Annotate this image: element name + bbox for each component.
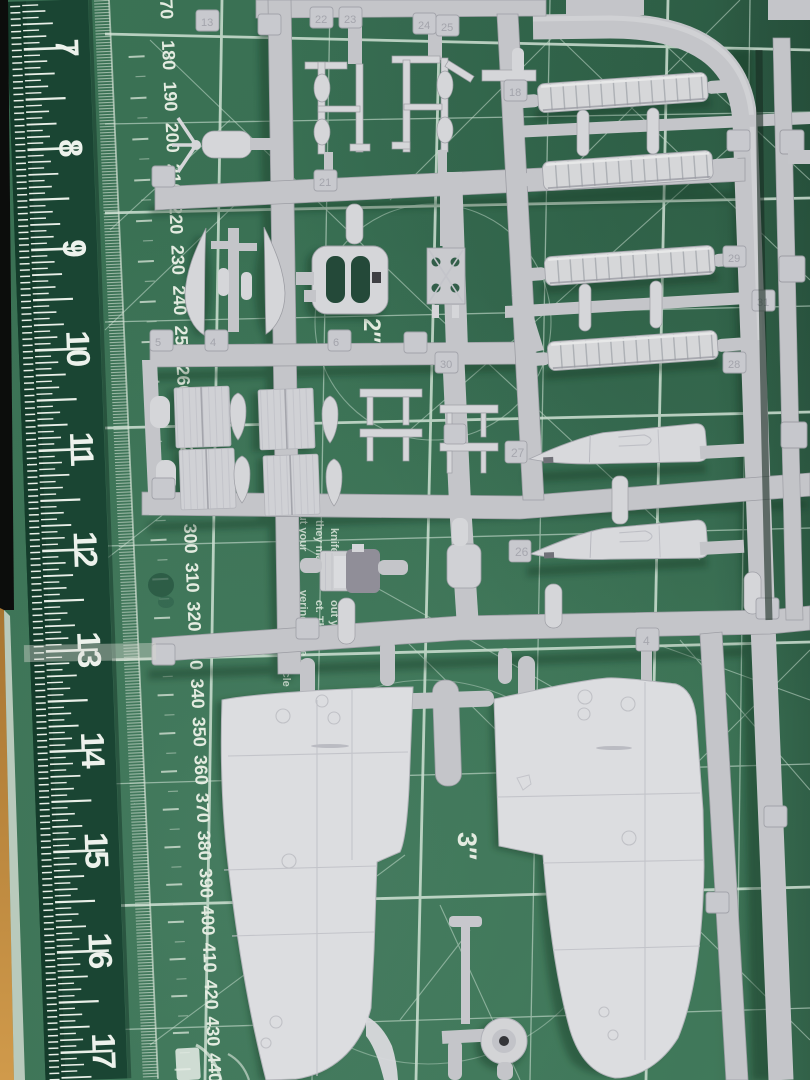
svg-text:9: 9 — [56, 239, 94, 259]
svg-text:7: 7 — [48, 38, 86, 58]
svg-text:12: 12 — [66, 530, 104, 568]
svg-text:14: 14 — [74, 731, 112, 770]
svg-text:17: 17 — [85, 1032, 123, 1070]
svg-text:11: 11 — [63, 431, 101, 467]
svg-text:10: 10 — [59, 330, 97, 368]
svg-text:15: 15 — [78, 831, 116, 869]
svg-text:8: 8 — [52, 138, 90, 158]
svg-text:16: 16 — [81, 932, 119, 970]
